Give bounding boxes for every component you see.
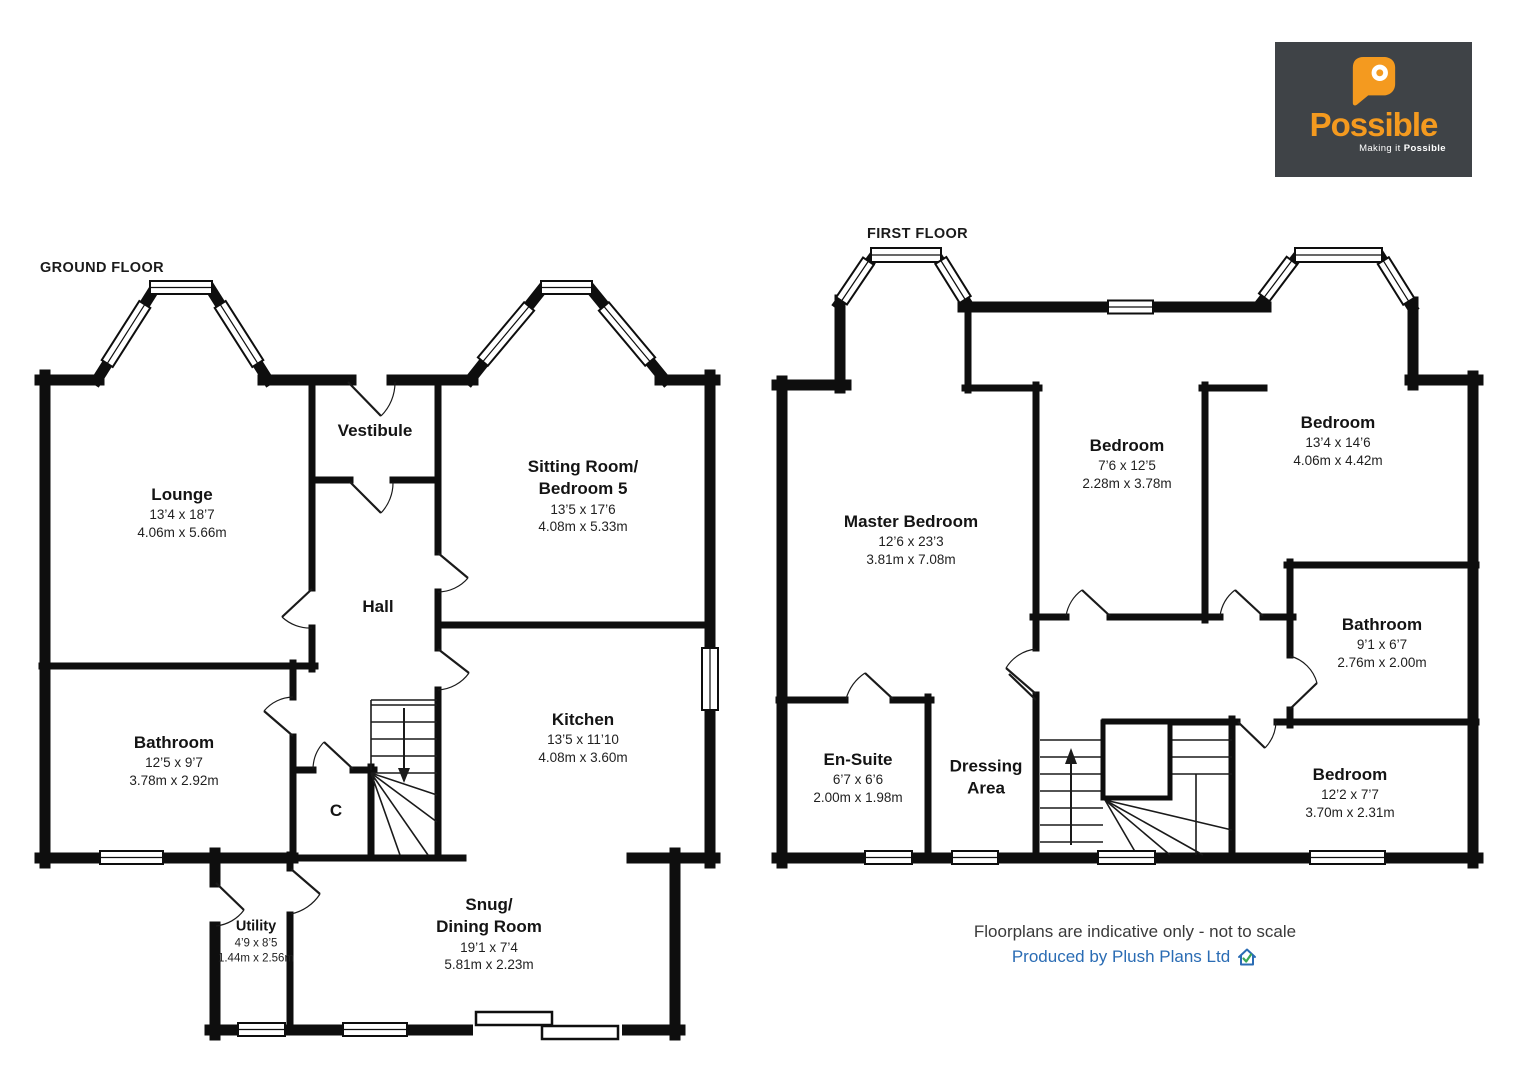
room-dims-imperial: 6’7 x 6’6 [813, 772, 902, 790]
master-bedroom-door [1006, 649, 1036, 694]
footer-credit-link[interactable]: Produced by Plush Plans Ltd [1012, 945, 1258, 970]
possible-logo-wordmark: Possible [1310, 108, 1438, 141]
room-label-ensuite: En-Suite 6’7 x 6’6 2.00m x 1.98m [813, 749, 902, 807]
room-dims-imperial: 12’2 x 7’7 [1305, 787, 1394, 805]
room-name: Bedroom [1305, 764, 1394, 786]
room-label-vestibule: Vestibule [338, 420, 413, 442]
footer-credit-text: Produced by Plush Plans Ltd [1012, 945, 1230, 970]
room-dims-imperial: 12’6 x 23’3 [844, 534, 978, 552]
room-name-line2: Area [950, 778, 1023, 800]
ground-windows [100, 281, 718, 1039]
room-name: C [330, 800, 342, 822]
room-dims-metric: 2.28m x 3.78m [1082, 475, 1171, 493]
ensuite-window [865, 851, 912, 864]
possible-logo: Possible Making it Possible [1275, 42, 1472, 177]
first-doors [846, 590, 1317, 748]
ground-doors [216, 382, 469, 926]
first-stairs-up-arrow [1065, 748, 1077, 764]
room-label-lounge: Lounge 13’4 x 18’7 4.06m x 5.66m [137, 484, 226, 542]
room-name: Bathroom [129, 732, 218, 754]
room-dims-metric: 5.81m x 2.23m [436, 956, 542, 974]
ground-floor-plan [40, 281, 718, 1039]
landing-top-window [1108, 301, 1153, 314]
room-dims-imperial: 12’5 x 9’7 [129, 755, 218, 773]
room-label-closet: C [330, 800, 342, 822]
room-name: Master Bedroom [844, 511, 978, 533]
sitting-room-bay-window [478, 281, 655, 366]
room-name: Sitting Room/ [528, 456, 638, 478]
room-name-line2: Dining Room [436, 916, 542, 938]
sitting-room-door [438, 553, 468, 592]
floorplan-page: GROUND FLOOR FIRST FLOOR Lounge 13’4 x 1… [0, 0, 1518, 1080]
room-name: Bedroom [1082, 435, 1171, 457]
room-dims-imperial: 13’4 x 14’6 [1293, 435, 1382, 453]
room-name: Utility [218, 918, 294, 937]
room-name: Kitchen [538, 709, 627, 731]
room-label-sitting-room: Sitting Room/ Bedroom 5 13’5 x 17’6 4.08… [528, 456, 638, 536]
room-dims-imperial: 13’5 x 11’10 [538, 732, 627, 750]
room-label-bathroom-ground: Bathroom 12’5 x 9’7 3.78m x 2.92m [129, 732, 218, 790]
room-label-bedroom4: Bedroom 12’2 x 7’7 3.70m x 2.31m [1305, 764, 1394, 822]
possible-logo-icon [1351, 56, 1397, 106]
ground-exterior-walls [40, 288, 715, 1035]
footer-disclaimer: Floorplans are indicative only - not to … [935, 920, 1335, 945]
closet-door [313, 742, 353, 769]
room-label-kitchen: Kitchen 13’5 x 11’10 4.08m x 3.60m [538, 709, 627, 767]
bathroom-window [100, 851, 163, 864]
room-dims-metric: 3.70m x 2.31m [1305, 804, 1394, 822]
snug-sliding-door [473, 1012, 622, 1039]
room-name: Vestibule [338, 420, 413, 442]
room-dims-imperial: 9’1 x 6’7 [1337, 637, 1426, 655]
room-label-master-bedroom: Master Bedroom 12’6 x 23’3 3.81m x 7.08m [844, 511, 978, 569]
entrance-door [348, 382, 395, 416]
room-label-utility: Utility 4’9 x 8’5 1.44m x 2.56m [218, 918, 294, 967]
dressing-window [952, 851, 998, 864]
tagline-bold: Possible [1404, 143, 1446, 154]
room-dims-metric: 3.78m x 2.92m [129, 772, 218, 790]
room-name: Dressing [950, 756, 1023, 778]
room-name: Snug/ [436, 894, 542, 916]
room-label-bathroom-first: Bathroom 9’1 x 6’7 2.76m x 2.00m [1337, 614, 1426, 672]
room-dims-metric: 4.06m x 4.42m [1293, 452, 1382, 470]
room-name: Hall [362, 596, 393, 618]
room-name: Bedroom [1293, 412, 1382, 434]
snug-window [343, 1023, 407, 1036]
bedroom4-window [1310, 851, 1385, 864]
room-label-hall: Hall [362, 596, 393, 618]
bedroom4-door [1238, 722, 1276, 748]
bedroom3-door [1220, 590, 1263, 616]
bathroom-first-door [1290, 656, 1317, 709]
room-name: En-Suite [813, 749, 902, 771]
room-dims-imperial: 13’5 x 17’6 [528, 501, 638, 519]
kitchen-door [438, 649, 469, 690]
bathroom-door [264, 697, 293, 736]
room-dims-metric: 2.76m x 2.00m [1337, 654, 1426, 672]
plush-plans-house-icon [1236, 947, 1258, 967]
room-label-dressing-area: Dressing Area [950, 756, 1023, 801]
kitchen-window [702, 648, 718, 710]
dressing-area-door [1009, 655, 1036, 700]
vestibule-hall-door [350, 482, 393, 513]
ground-stairs-down-arrow [398, 768, 410, 783]
utility-snug-door [291, 869, 320, 914]
room-name-line2: Bedroom 5 [528, 478, 638, 500]
room-label-snug: Snug/ Dining Room 19’1 x 7’4 5.81m x 2.2… [436, 894, 542, 974]
room-name: Lounge [137, 484, 226, 506]
stairs-window [1098, 851, 1155, 864]
room-dims-imperial: 19’1 x 7’4 [436, 939, 542, 957]
room-label-bedroom3: Bedroom 13’4 x 14’6 4.06m x 4.42m [1293, 412, 1382, 470]
possible-logo-tagline: Making it Possible [1359, 143, 1446, 154]
footer: Floorplans are indicative only - not to … [935, 920, 1335, 969]
room-dims-metric: 4.06m x 5.66m [137, 524, 226, 542]
first-stairs-void [1103, 722, 1170, 798]
ensuite-door [846, 673, 893, 699]
room-name: Bathroom [1337, 614, 1426, 636]
lounge-door [282, 589, 312, 628]
lounge-bay-window [102, 281, 264, 367]
room-dims-metric: 4.08m x 3.60m [538, 749, 627, 767]
bedroom2-door [1066, 590, 1110, 616]
bedroom3-bay-window [1259, 248, 1414, 305]
ground-floor-header: GROUND FLOOR [40, 260, 164, 276]
room-dims-imperial: 4’9 x 8’5 [218, 937, 294, 952]
master-bay-window [836, 248, 971, 305]
first-floor-header: FIRST FLOOR [867, 226, 968, 242]
room-dims-imperial: 7’6 x 12’5 [1082, 458, 1171, 476]
room-dims-metric: 1.44m x 2.56m [218, 952, 294, 967]
room-dims-metric: 4.08m x 5.33m [528, 518, 638, 536]
room-dims-imperial: 13’4 x 18’7 [137, 507, 226, 525]
room-label-bedroom2: Bedroom 7’6 x 12’5 2.28m x 3.78m [1082, 435, 1171, 493]
room-dims-metric: 2.00m x 1.98m [813, 789, 902, 807]
utility-window [238, 1023, 285, 1036]
room-dims-metric: 3.81m x 7.08m [844, 551, 978, 569]
tagline-prefix: Making it [1359, 143, 1404, 154]
